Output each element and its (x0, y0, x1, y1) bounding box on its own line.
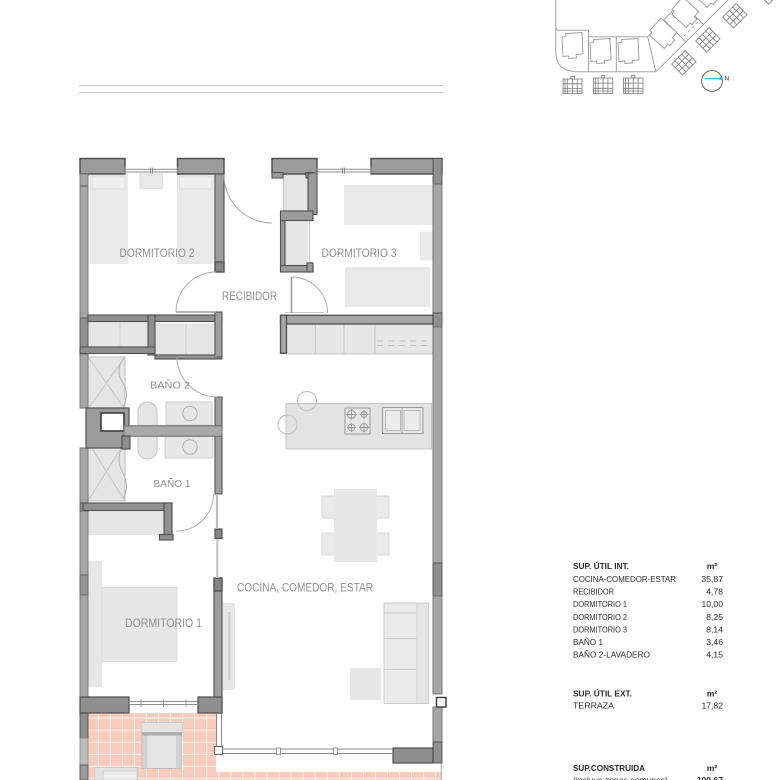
svg-text:RECIBIDOR: RECIBIDOR (573, 587, 614, 597)
svg-text:10,00: 10,00 (701, 599, 723, 609)
svg-text:DORMITORIO 1: DORMITORIO 1 (573, 599, 627, 609)
svg-text:DORMITORIO 3: DORMITORIO 3 (322, 246, 397, 260)
svg-text:DORMITORIO 2: DORMITORIO 2 (573, 612, 627, 622)
svg-text:8,25: 8,25 (706, 612, 723, 622)
svg-text:17,82: 17,82 (701, 701, 723, 711)
svg-text:m²: m² (707, 763, 718, 773)
svg-text:DORMITORIO 2: DORMITORIO 2 (120, 246, 195, 260)
svg-text:COCINA-COMEDOR-ESTAR: COCINA-COMEDOR-ESTAR (573, 574, 676, 584)
svg-text:BAÑO 2-LAVADERO: BAÑO 2-LAVADERO (573, 650, 650, 660)
svg-text:m²: m² (707, 561, 718, 571)
svg-text:35,87: 35,87 (701, 574, 723, 584)
svg-text:SUP. ÚTIL EXT.: SUP. ÚTIL EXT. (573, 688, 632, 699)
svg-text:N: N (725, 76, 730, 83)
svg-text:m²: m² (707, 689, 718, 699)
svg-text:DORMITORIO 3: DORMITORIO 3 (573, 625, 627, 635)
svg-text:3,46: 3,46 (706, 637, 723, 647)
svg-text:COCINA, COMEDOR, ESTAR: COCINA, COMEDOR, ESTAR (237, 581, 373, 595)
svg-text:BAÑO 1: BAÑO 1 (154, 477, 191, 490)
svg-text:4,15: 4,15 (706, 650, 723, 660)
svg-text:SUP.CONSTRUIDA: SUP.CONSTRUIDA (573, 763, 645, 773)
svg-text:RECIBIDOR: RECIBIDOR (222, 289, 277, 303)
svg-text:4,78: 4,78 (706, 587, 723, 597)
svg-text:SUP. ÚTIL INT.: SUP. ÚTIL INT. (573, 560, 629, 571)
svg-text:100,67: 100,67 (697, 775, 724, 780)
svg-text:(incluye zonas comunes): (incluye zonas comunes) (573, 775, 668, 780)
svg-text:DORMITORIO 1: DORMITORIO 1 (125, 616, 202, 630)
svg-text:BAÑO 1: BAÑO 1 (573, 637, 603, 647)
svg-text:8,14: 8,14 (706, 625, 723, 635)
svg-text:TERRAZA: TERRAZA (573, 701, 614, 711)
svg-text:BAÑO 2: BAÑO 2 (150, 379, 190, 392)
